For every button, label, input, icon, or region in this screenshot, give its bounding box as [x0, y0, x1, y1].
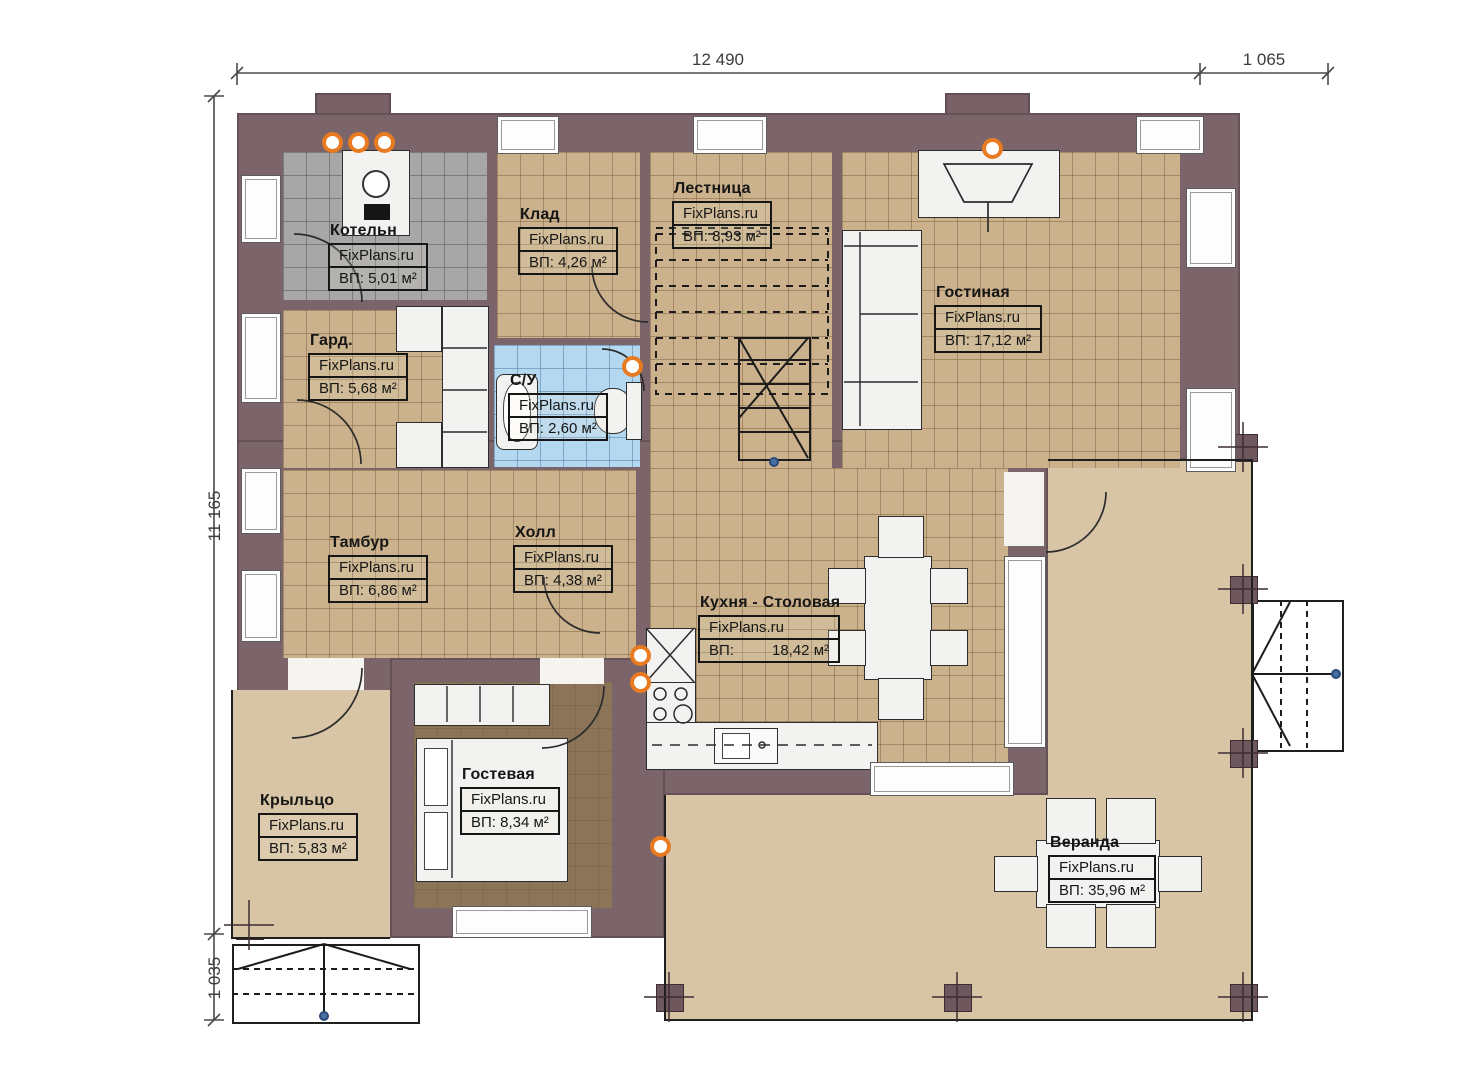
boiler-vent [364, 204, 390, 220]
lamp-icon [982, 138, 1003, 159]
room-brand: FixPlans.ru [510, 395, 606, 418]
room-area: ВП: 17,12 м² [936, 330, 1040, 351]
room-label-kotelnaya: Котельн FixPlans.ru ВП: 5,01 м² [328, 222, 428, 291]
room-area: ВП: 5,83 м² [260, 838, 356, 859]
veranda-post [1230, 576, 1258, 604]
room-brand: FixPlans.ru [700, 617, 838, 640]
room-area: ВП: 4,38 м² [515, 570, 611, 591]
veranda-chair [1158, 856, 1202, 892]
room-area: ВП: 35,96 м² [1050, 880, 1154, 901]
room-area: ВП: 5,01 м² [330, 268, 426, 289]
dining-table [864, 556, 932, 680]
room-name: Веранда [1050, 834, 1156, 852]
room-brand: FixPlans.ru [462, 789, 558, 812]
window [1186, 188, 1236, 268]
kitchen-cabinet [646, 628, 696, 684]
window [241, 570, 281, 642]
fireplace [918, 150, 1060, 218]
room-name: Лестница [674, 180, 772, 198]
lamp-icon [322, 132, 343, 153]
dimension-top-right: 1 065 [1224, 50, 1304, 70]
room-area: ВП: 2,60 м² [510, 418, 606, 439]
dining-chair [930, 630, 968, 666]
room-label-gostinaya: Гостиная FixPlans.ru ВП: 17,12 м² [934, 284, 1042, 353]
veranda-post [944, 984, 972, 1012]
dimension-left-main: 11 165 [205, 471, 225, 561]
window [1004, 556, 1046, 748]
wardrobe-cabinet [442, 306, 489, 468]
lamp-icon [630, 672, 651, 693]
room-area: ВП: 8,93 м² [674, 226, 770, 247]
room-name: Гостевая [462, 766, 560, 784]
room-brand: FixPlans.ru [330, 245, 426, 268]
window [241, 175, 281, 243]
room-brand: FixPlans.ru [330, 557, 426, 580]
kitchen-sink-bowl [722, 733, 750, 759]
room-area-label: ВП: [709, 642, 734, 659]
lamp-icon [348, 132, 369, 153]
veranda-chair [1046, 904, 1096, 948]
room-label-klad: Клад FixPlans.ru ВП: 4,26 м² [518, 206, 618, 275]
window [1186, 388, 1236, 472]
door-opening-veranda [1004, 472, 1044, 546]
room-label-holl: Холл FixPlans.ru ВП: 4,38 м² [513, 524, 613, 593]
room-brand: FixPlans.ru [520, 229, 616, 252]
veranda-post [1230, 984, 1258, 1012]
door-opening-porch [288, 658, 364, 690]
room-area-value: 18,42 м² [772, 642, 829, 659]
dining-chair [878, 678, 924, 720]
room-brand: FixPlans.ru [674, 203, 770, 226]
veranda-chair [1106, 904, 1156, 948]
room-name: Холл [515, 524, 613, 542]
room-name: Тамбур [330, 534, 428, 552]
lamp-icon [374, 132, 395, 153]
lamp-icon [622, 356, 643, 377]
room-brand: FixPlans.ru [1050, 857, 1154, 880]
porch-exterior-stairs [232, 944, 420, 1024]
dining-chair [930, 568, 968, 604]
door-opening-guest [540, 658, 604, 684]
sofa [842, 230, 922, 430]
room-label-sanuzel: С/У FixPlans.ru ВП: 2,60 м² [508, 372, 608, 441]
lamp-icon [650, 836, 671, 857]
dimension-left-bottom: 1 035 [205, 935, 225, 1021]
wardrobe-cabinet [396, 422, 442, 468]
room-brand: FixPlans.ru [515, 547, 611, 570]
boiler-dial [362, 170, 390, 198]
room-name: Кухня - Столовая [700, 594, 840, 612]
room-name: Котельн [330, 222, 428, 240]
room-brand: FixPlans.ru [310, 355, 406, 378]
room-area: ВП: 5,68 м² [310, 378, 406, 399]
room-area: ВП: 6,86 м² [330, 580, 426, 601]
room-label-gostevaya: Гостевая FixPlans.ru ВП: 8,34 м² [460, 766, 560, 835]
floor-plan: 12 490 1 065 11 165 1 035 Котельн FixPla… [0, 0, 1473, 1080]
room-brand: FixPlans.ru [260, 815, 356, 838]
room-name: Клад [520, 206, 618, 224]
window [870, 762, 1014, 796]
veranda-post [1230, 740, 1258, 768]
room-area: ВП: 4,26 м² [520, 252, 616, 273]
veranda-chair [994, 856, 1038, 892]
window [452, 906, 592, 938]
guest-wardrobe [414, 684, 550, 726]
room-label-kuhnya: Кухня - Столовая FixPlans.ru ВП:18,42 м² [698, 594, 840, 663]
window [1136, 116, 1204, 154]
lamp-icon [630, 645, 651, 666]
toilet-tank [626, 382, 642, 440]
room-name: Гостиная [936, 284, 1042, 302]
room-label-garderob: Гард. FixPlans.ru ВП: 5,68 м² [308, 332, 408, 401]
room-label-tambur: Тамбур FixPlans.ru ВП: 6,86 м² [328, 534, 428, 603]
bed-pillow [424, 812, 448, 870]
room-label-veranda: Веранда FixPlans.ru ВП: 35,96 м² [1048, 834, 1156, 903]
room-brand: FixPlans.ru [936, 307, 1040, 330]
window [241, 313, 281, 403]
room-name: Крыльцо [260, 792, 358, 810]
room-area: ВП: 8,34 м² [462, 812, 558, 833]
window [241, 468, 281, 534]
room-label-kryltso: Крыльцо FixPlans.ru ВП: 5,83 м² [258, 792, 358, 861]
bed-pillow [424, 748, 448, 806]
dimension-top-main: 12 490 [668, 50, 768, 70]
veranda-post [656, 984, 684, 1012]
room-label-lestnitsa: Лестница FixPlans.ru ВП: 8,93 м² [672, 180, 772, 249]
room-name: Гард. [310, 332, 408, 350]
dining-chair [878, 516, 924, 558]
room-name: С/У [510, 372, 608, 390]
window [693, 116, 767, 154]
side-exterior-stairs [1252, 600, 1344, 752]
window [497, 116, 559, 154]
